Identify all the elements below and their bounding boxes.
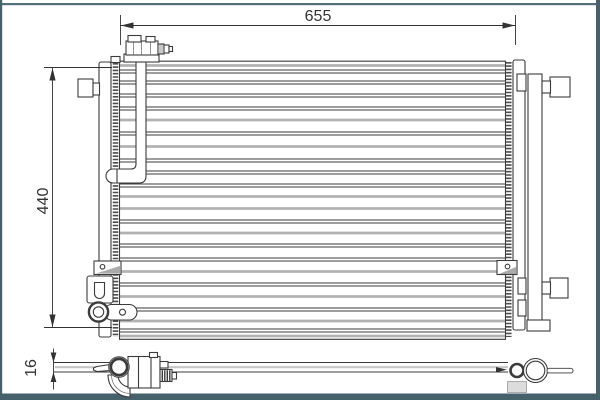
arrow-up	[51, 372, 57, 382]
right-clip-bottom	[518, 300, 526, 316]
top-inlet-fitting	[124, 36, 173, 63]
arrow-top	[49, 68, 55, 81]
nozzle-tip	[169, 47, 173, 52]
dim-width-655: 655	[121, 8, 516, 45]
port-pad	[508, 382, 527, 393]
side-fitting-assembly	[94, 353, 177, 398]
drawing-canvas: 655 440 16	[0, 0, 600, 400]
dim-width-label: 655	[305, 8, 332, 25]
fitting-tab-right	[146, 37, 155, 43]
front-view	[78, 36, 570, 340]
right-side-plate	[528, 74, 542, 326]
port-pin	[547, 368, 573, 373]
bracket-slot-bottom-left	[87, 276, 113, 303]
frame-top	[2, 3, 596, 5]
arrow-down	[51, 353, 57, 363]
condenser-technical-drawing: 655 440 16	[0, 0, 600, 400]
frame-bottom	[0, 394, 600, 400]
nozzle-ring	[158, 44, 164, 54]
bracket-hole-left	[94, 261, 121, 275]
valve-top-knob	[150, 353, 158, 358]
side-right-ports	[508, 359, 574, 393]
arrow-bottom	[49, 315, 55, 328]
outlet-fitting-bottom-left	[89, 302, 137, 321]
side-view	[54, 353, 574, 398]
core-tube-lines	[119, 70, 506, 332]
dim-height-label: 440	[35, 188, 52, 215]
core-tubes	[119, 61, 506, 339]
dim-depth-16: 16	[23, 349, 91, 390]
nozzle-mid	[164, 45, 169, 53]
bracket-block	[78, 79, 93, 97]
fitting-port-outer	[89, 302, 108, 321]
bracket-hole-right	[497, 261, 517, 275]
mount-tongue	[94, 365, 111, 372]
right-clip-middle	[518, 278, 526, 294]
core-fin-lines	[119, 66, 506, 337]
left-tank-top-step	[111, 57, 120, 63]
arrow-right	[503, 22, 516, 28]
valve-body	[128, 357, 160, 389]
right-clip-top	[517, 74, 526, 91]
dim-depth-label: 16	[23, 359, 40, 377]
large-port-inner	[526, 361, 545, 380]
mounting-tab-top-right	[542, 77, 570, 97]
pipe-outline	[106, 62, 146, 183]
tab-neck	[542, 81, 551, 93]
tab-neck	[542, 282, 551, 294]
fitting-tab-left	[128, 36, 141, 43]
small-port	[511, 364, 524, 377]
ribbed-fitting-tip	[172, 373, 177, 380]
arrow-left	[121, 22, 134, 28]
tab-block	[550, 278, 568, 298]
side-knob	[160, 362, 168, 369]
mounting-tab-bottom-right	[542, 278, 568, 298]
inlet-pipe	[106, 62, 146, 183]
port-ring	[111, 359, 127, 375]
frame-left	[0, 0, 2, 400]
bracket-neck	[93, 83, 100, 95]
tab-block	[550, 77, 570, 97]
frame-right	[596, 0, 600, 400]
right-side-plate-foot	[527, 320, 550, 331]
frame-border	[0, 0, 600, 400]
mounting-bracket-top-left	[78, 79, 100, 97]
fitting-body	[126, 41, 158, 55]
